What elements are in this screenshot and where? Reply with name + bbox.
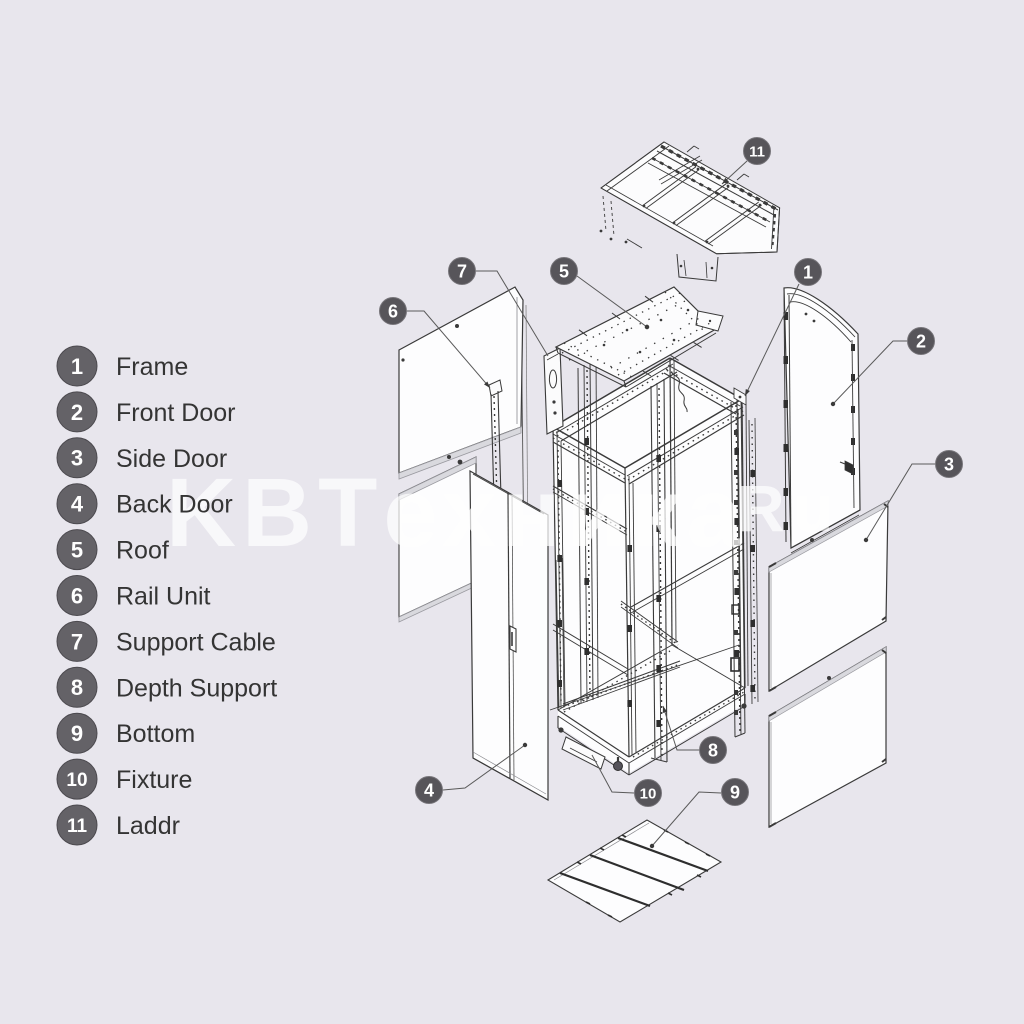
svg-text:6: 6 — [388, 301, 398, 321]
svg-text:7: 7 — [71, 629, 83, 654]
svg-text:11: 11 — [749, 143, 765, 160]
svg-text:9: 9 — [730, 782, 740, 802]
svg-text:10: 10 — [640, 785, 657, 802]
svg-text:10: 10 — [66, 770, 87, 791]
svg-text:3: 3 — [71, 446, 83, 471]
svg-text:Frame: Frame — [116, 353, 188, 381]
svg-text:Front Door: Front Door — [116, 399, 235, 427]
svg-text:8: 8 — [708, 740, 718, 760]
svg-text:Bottom: Bottom — [116, 720, 195, 748]
svg-text:2: 2 — [71, 400, 83, 425]
svg-text:3: 3 — [944, 454, 954, 474]
svg-text:Side Door: Side Door — [116, 445, 227, 473]
svg-text:Laddr: Laddr — [116, 812, 180, 840]
svg-text:Rail Unit: Rail Unit — [116, 583, 211, 611]
svg-text:11: 11 — [67, 816, 88, 837]
svg-text:9: 9 — [71, 721, 83, 746]
svg-text:7: 7 — [457, 261, 467, 281]
svg-text:Depth Support: Depth Support — [116, 674, 277, 702]
svg-text:1: 1 — [803, 262, 813, 282]
svg-text:Back Door: Back Door — [116, 491, 233, 519]
svg-text:R: R — [737, 471, 785, 545]
svg-text:4: 4 — [424, 780, 434, 800]
svg-text:KBTехника: KBTехника — [166, 458, 747, 567]
svg-text:Fixture: Fixture — [116, 766, 192, 794]
svg-text:6: 6 — [71, 583, 83, 608]
svg-text:Roof: Roof — [116, 537, 169, 565]
svg-text:2: 2 — [916, 331, 926, 351]
svg-text:5: 5 — [71, 538, 83, 563]
svg-text:u: u — [793, 471, 833, 545]
svg-text:8: 8 — [71, 675, 83, 700]
svg-text:Support Cable: Support Cable — [116, 628, 276, 656]
svg-text:4: 4 — [71, 492, 84, 517]
svg-text:1: 1 — [71, 354, 83, 379]
svg-text:5: 5 — [559, 261, 569, 281]
